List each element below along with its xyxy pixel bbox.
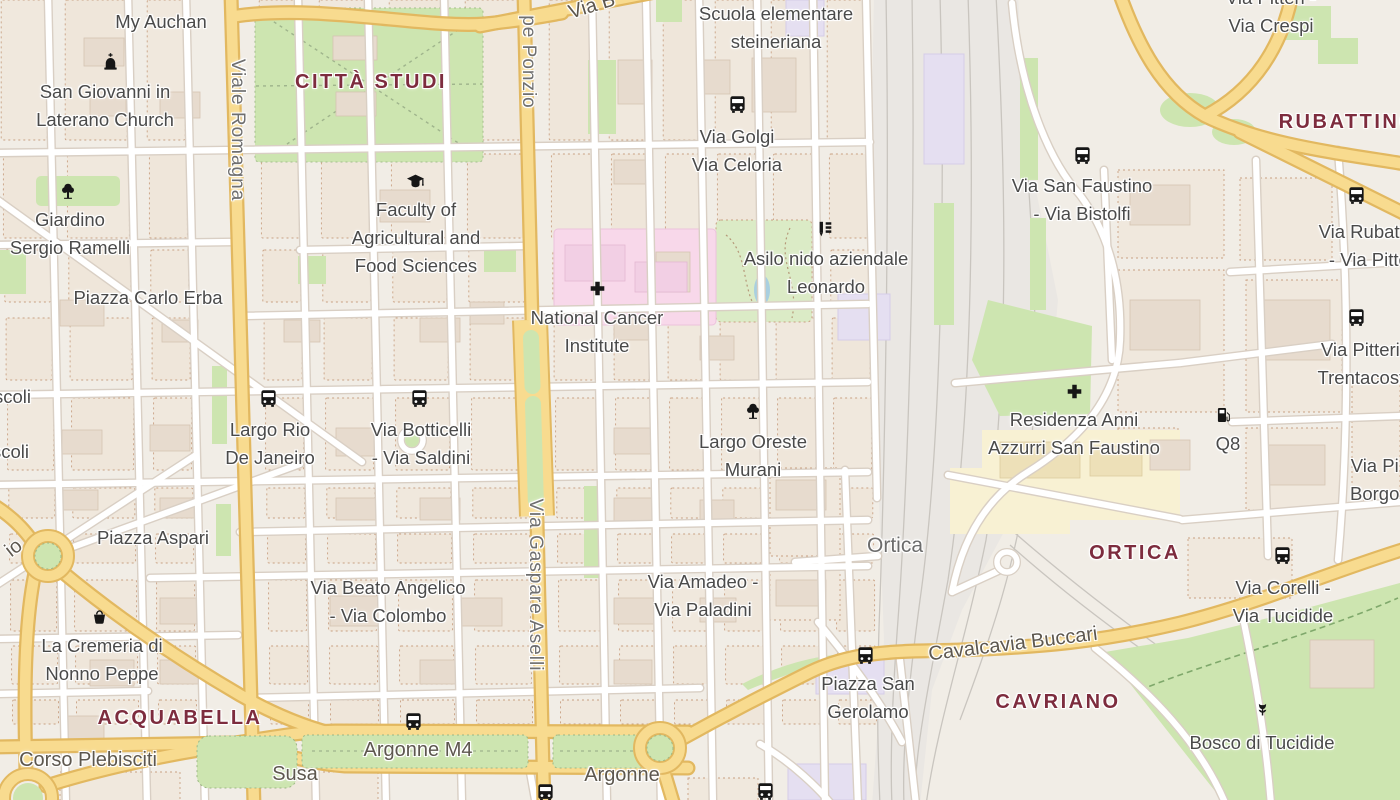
map-label-giardino-ramelli: GiardinoSergio Ramelli	[10, 206, 130, 262]
map-label-line: Via Pi	[1350, 452, 1399, 480]
map-label-pitteri-crespi: Via Pitteri -Via Crespi	[1226, 0, 1316, 40]
map-label-ortica-district: ORTICA	[1089, 541, 1181, 565]
map-label-line: Borgo	[1350, 480, 1399, 508]
map-label-line: Via Rubattino	[1319, 218, 1400, 246]
map-label-line: National Cancer	[531, 304, 664, 332]
map-label-acquabella: ACQUABELLA	[98, 706, 263, 730]
map-label-scuola-steineriana: Scuola elementaresteineriana	[699, 0, 853, 56]
map-label-line: ACQUABELLA	[98, 706, 263, 730]
map-label-ortica-locality: Ortica	[867, 533, 923, 559]
map-label-line: Viale Romagna	[226, 59, 248, 202]
map-label-line: Corso Plebisciti	[19, 748, 157, 773]
map-label-line: Via Celoria	[692, 151, 782, 179]
map-label-bosco-di-tucidide: Bosco di Tucidide	[1189, 729, 1334, 757]
map-label-piazza-carlo-erba: Piazza Carlo Erba	[73, 284, 222, 312]
map-label-rubattino: RUBATTINO	[1279, 110, 1400, 134]
map-label-line: Via San Faustino	[1012, 172, 1153, 200]
map-label-line: Azzurri San Faustino	[988, 434, 1160, 462]
map-label-amadeo-paladini: Via Amadeo -Via Paladini	[648, 568, 759, 624]
map-label-line: Leonardo	[744, 273, 909, 301]
map-label-line: Via Golgi	[692, 123, 782, 151]
map-label-line: Via Paladini	[648, 596, 759, 624]
map-label-line: Agricultural and	[352, 224, 481, 252]
map-label-line: scoli	[0, 438, 29, 466]
map-label-national-cancer-institute: National CancerInstitute	[531, 304, 664, 360]
map-label-piazza-san-gerolamo: Piazza SanGerolamo	[821, 670, 915, 726]
map-label-faculty-agriculture: Faculty ofAgricultural andFood Sciences	[352, 196, 481, 280]
map-label-scoli-2: scoli	[0, 438, 29, 466]
map-label-line: Susa	[272, 762, 318, 787]
map-label-line: Via Gaspare Aselli	[524, 499, 546, 672]
map-label-line: - Via Bistolfi	[1012, 200, 1153, 228]
map-label-line: pe Ponzio	[517, 15, 539, 109]
map-label-line: Via Botticelli	[371, 416, 471, 444]
map-label-largo-rio-de-janeiro: Largo RioDe Janeiro	[225, 416, 314, 472]
map-label-line: Argonne M4	[364, 738, 473, 763]
map-label-line: San Giovanni in	[36, 78, 174, 106]
map-label-my-auchan: My Auchan	[115, 8, 207, 36]
map-label-la-cremeria: La Cremeria diNonno Peppe	[41, 632, 162, 688]
map-label-line: Residenza Anni	[988, 406, 1160, 434]
map-label-argonne: Argonne	[584, 763, 660, 788]
map-label-line: Via Corelli -	[1233, 574, 1333, 602]
map-label-citta-studi: CITTÀ STUDI	[295, 70, 447, 94]
map-label-q8: Q8	[1216, 430, 1241, 458]
map-label-line: Sergio Ramelli	[10, 234, 130, 262]
map-label-line: scoli	[0, 383, 31, 411]
map-label-beato-angelico-colombo: Via Beato Angelico- Via Colombo	[311, 574, 466, 630]
map-label-line: Scuola elementare	[699, 0, 853, 28]
map-label-line: - Via Saldini	[371, 444, 471, 472]
map-label-san-giovanni-church: San Giovanni inLaterano Church	[36, 78, 174, 134]
map-label-line: La Cremeria di	[41, 632, 162, 660]
map-label-asilo-leonardo: Asilo nido aziendaleLeonardo	[744, 245, 909, 301]
map-label-line: Gerolamo	[821, 698, 915, 726]
map-label-line: Food Sciences	[352, 252, 481, 280]
map-label-scoli-1: scoli	[0, 383, 31, 411]
map-label-line: CAVRIANO	[995, 690, 1120, 714]
map-label-line: RUBATTINO	[1279, 110, 1400, 134]
map-label-largo-oreste-murani: Largo OresteMurani	[699, 428, 807, 484]
map-label-susa: Susa	[272, 762, 318, 787]
map-label-corelli-tucidide: Via Corelli -Via Tucidide	[1233, 574, 1333, 630]
map-label-line: Murani	[699, 456, 807, 484]
map-label-argonne-m4: Argonne M4	[364, 738, 473, 763]
map-label-line: Via Pitteri -	[1318, 336, 1400, 364]
map-label-viale-romagna: Viale Romagna	[226, 59, 248, 202]
map-tiles	[0, 0, 1400, 800]
map-label-corso-plebisciti: Corso Plebisciti	[19, 748, 157, 773]
map-label-line: Giardino	[10, 206, 130, 234]
map-label-residenza-anni-azzurri: Residenza AnniAzzurri San Faustino	[988, 406, 1160, 462]
map-label-botticelli-saldini: Via Botticelli- Via Saldini	[371, 416, 471, 472]
map-label-via-pi-borgo: Via PiBorgo	[1350, 452, 1399, 508]
map-label-line: - Via Colombo	[311, 602, 466, 630]
map-label-line: Faculty of	[352, 196, 481, 224]
map-label-line: Nonno Peppe	[41, 660, 162, 688]
map-label-line: CITTÀ STUDI	[295, 70, 447, 94]
map-label-piazza-aspari: Piazza Aspari	[97, 524, 209, 552]
map-label-line: Via Beato Angelico	[311, 574, 466, 602]
map-label-line: Piazza Carlo Erba	[73, 284, 222, 312]
map-label-line: Via Amadeo -	[648, 568, 759, 596]
map-label-via-gaspare-aselli: Via Gaspare Aselli	[524, 499, 546, 672]
map-label-line: Largo Oreste	[699, 428, 807, 456]
map-label-pe-ponzio: pe Ponzio	[517, 15, 539, 109]
map-label-line: steineriana	[699, 28, 853, 56]
map-label-line: Piazza Aspari	[97, 524, 209, 552]
map-canvas[interactable]: My AuchanSan Giovanni inLaterano ChurchC…	[0, 0, 1400, 800]
map-label-cavriano: CAVRIANO	[995, 690, 1120, 714]
map-label-line: Piazza San	[821, 670, 915, 698]
map-label-pitteri-trentacoste: Via Pitteri -Trentacoste	[1318, 336, 1400, 392]
map-label-line: De Janeiro	[225, 444, 314, 472]
map-label-line: Via Tucidide	[1233, 602, 1333, 630]
map-label-line: Laterano Church	[36, 106, 174, 134]
map-label-san-faustino-bistolfi: Via San Faustino- Via Bistolfi	[1012, 172, 1153, 228]
map-label-line: Q8	[1216, 430, 1241, 458]
map-label-line: Asilo nido aziendale	[744, 245, 909, 273]
map-label-line: ORTICA	[1089, 541, 1181, 565]
map-label-rubattino-pitteri: Via Rubattino- Via Pitteri	[1319, 218, 1400, 274]
map-label-via-golgi-celoria: Via GolgiVia Celoria	[692, 123, 782, 179]
map-label-line: Institute	[531, 332, 664, 360]
map-label-line: Largo Rio	[225, 416, 314, 444]
map-label-line: My Auchan	[115, 8, 207, 36]
map-label-line: Bosco di Tucidide	[1189, 729, 1334, 757]
map-label-line: Trentacoste	[1318, 364, 1400, 392]
map-label-line: Ortica	[867, 533, 923, 559]
map-label-line: Via Crespi	[1226, 12, 1316, 40]
map-label-line: Argonne	[584, 763, 660, 788]
map-label-line: Via Pitteri -	[1226, 0, 1316, 12]
map-label-line: - Via Pitteri	[1319, 246, 1400, 274]
